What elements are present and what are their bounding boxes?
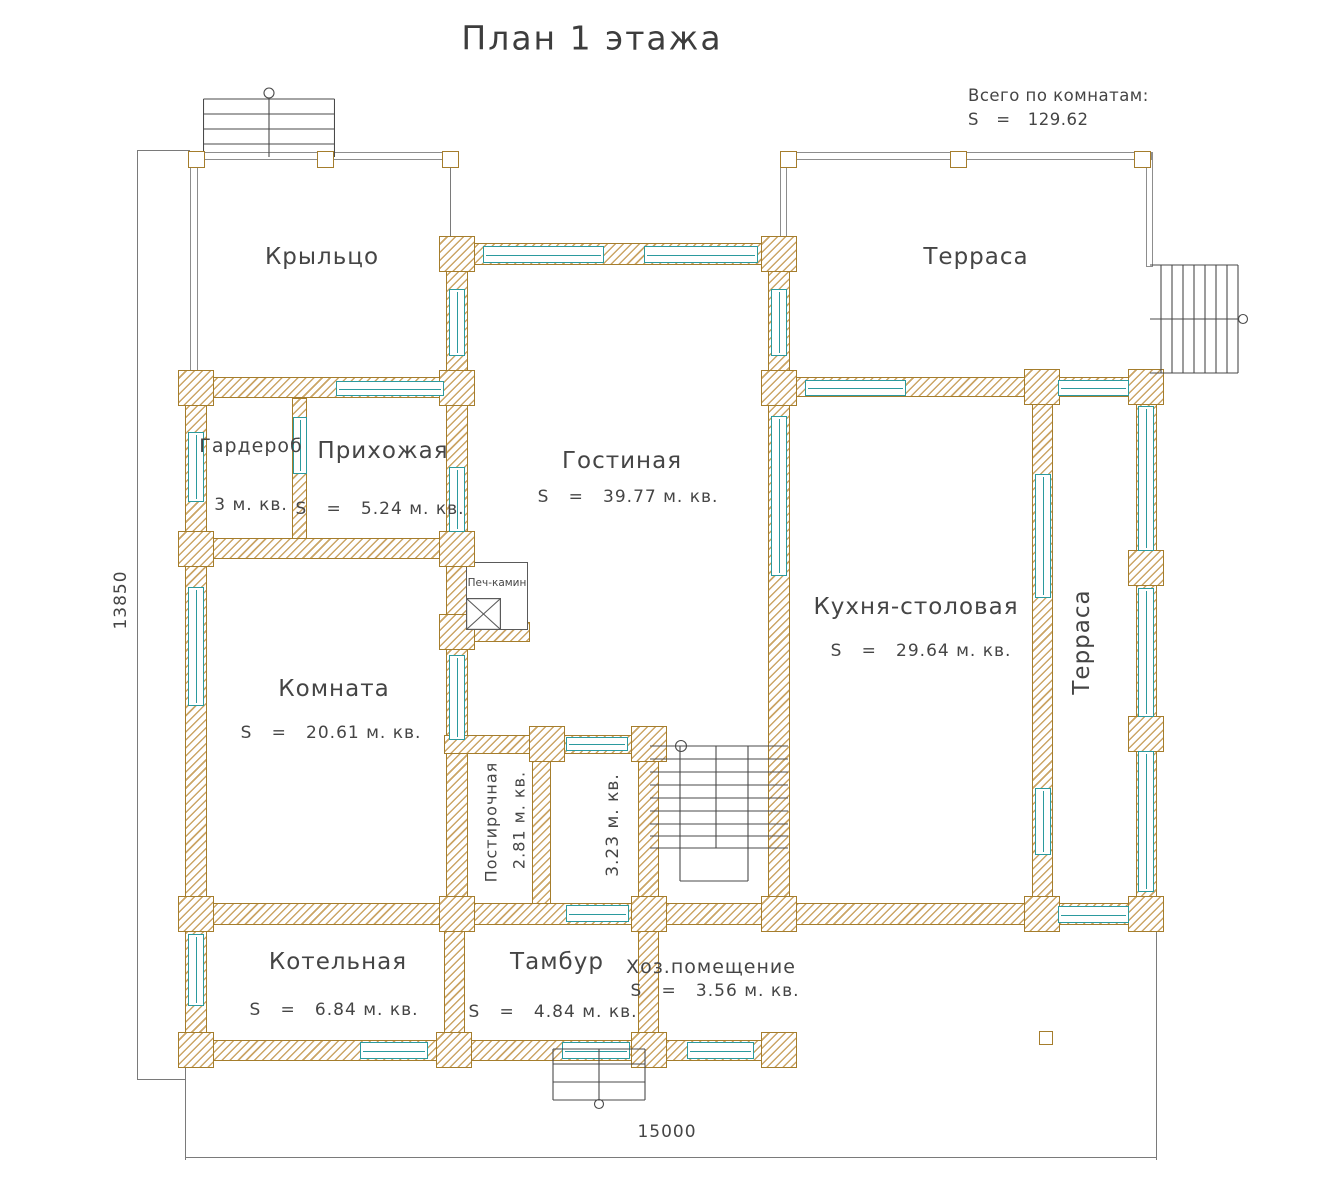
- porch-post: [317, 151, 334, 168]
- room-area-vestibule: S = 4.84 м. кв.: [468, 1002, 637, 1022]
- wall-segment: [185, 538, 468, 559]
- dimension-line: [185, 1157, 1157, 1158]
- window: [449, 289, 465, 356]
- window: [1035, 474, 1051, 598]
- wall-pier: [439, 531, 475, 567]
- dimension-line: [137, 150, 138, 1080]
- porch-outline: [190, 152, 198, 380]
- room-label-room: Комната: [278, 676, 389, 702]
- wall-pier: [1024, 369, 1060, 405]
- window: [360, 1042, 428, 1059]
- wall-pier: [436, 1032, 472, 1068]
- dimension-line: [185, 1066, 186, 1160]
- interior-stairs: [650, 736, 788, 886]
- wall-pier: [631, 896, 667, 932]
- room-area-stair-room: 3.23 м. кв.: [603, 773, 623, 877]
- wall-pier: [1128, 716, 1164, 752]
- summary-heading: Всего по комнатам:: [968, 86, 1149, 105]
- window: [336, 381, 444, 396]
- wall-segment: [185, 903, 1161, 925]
- porch-post: [780, 151, 797, 168]
- porch-outline: [1146, 152, 1153, 267]
- porch-post: [1134, 151, 1151, 168]
- dimension-width: 15000: [637, 1122, 696, 1142]
- window: [483, 246, 604, 263]
- wall-pier: [439, 370, 475, 406]
- dimension-line: [137, 1079, 185, 1080]
- window: [805, 380, 906, 396]
- dimension-line: [137, 150, 190, 151]
- room-area-kitchen: S = 29.64 м. кв.: [831, 641, 1012, 661]
- porch-stairs: [203, 86, 335, 158]
- page-title: План 1 этажа: [461, 19, 722, 58]
- wall-segment: [444, 925, 465, 1041]
- room-label-terrace-top: Терраса: [923, 244, 1028, 270]
- window: [644, 246, 758, 263]
- room-area-laundry: 2.81 м. кв.: [510, 771, 529, 869]
- room-label-wardrobe: Гардероб: [199, 435, 303, 457]
- wall-pier: [439, 896, 475, 932]
- floor-plan-sheet: План 1 этажа Всего по комнатам: S = 129.…: [0, 0, 1327, 1200]
- room-label-terrace-right: Терраса: [1069, 589, 1095, 694]
- wall-pier: [1024, 896, 1060, 932]
- room-label-laundry: Постирочная: [482, 762, 501, 883]
- window: [1138, 406, 1154, 551]
- porch-post: [442, 151, 459, 168]
- room-label-kitchen: Кухня-столовая: [813, 594, 1018, 620]
- room-label-utility: Хоз.помещение: [626, 956, 796, 978]
- summary-total: S = 129.62: [968, 110, 1089, 129]
- room-area-utility: S = 3.56 м. кв.: [630, 981, 799, 1001]
- porch-post: [188, 151, 205, 168]
- window: [188, 934, 204, 1006]
- room-label-vestibule: Тамбур: [510, 949, 604, 975]
- floor-plan: План 1 этажа Всего по комнатам: S = 129.…: [0, 0, 1327, 1200]
- window: [1058, 380, 1129, 396]
- window: [188, 587, 204, 706]
- window: [771, 289, 787, 356]
- porch-post: [1039, 1031, 1053, 1045]
- window: [1138, 588, 1154, 717]
- porch-post: [950, 151, 967, 168]
- room-label-hallway: Прихожая: [317, 438, 448, 464]
- room-area-room: S = 20.61 м. кв.: [241, 723, 422, 743]
- room-label-porch: Крыльцо: [265, 244, 379, 270]
- wall-pier: [178, 896, 214, 932]
- window: [771, 416, 787, 576]
- wall-pier: [761, 896, 797, 932]
- window: [449, 655, 465, 740]
- wall-pier: [1128, 550, 1164, 586]
- wall-pier: [178, 1032, 214, 1068]
- window: [566, 737, 628, 751]
- wall-pier: [761, 1032, 797, 1068]
- window: [1138, 751, 1154, 892]
- wall-pier: [529, 726, 565, 762]
- fireplace-label: Печ-камин: [468, 577, 527, 589]
- window: [566, 905, 629, 922]
- dimension-line: [1156, 930, 1157, 1160]
- room-label-boiler: Котельная: [269, 949, 407, 975]
- wall-segment: [532, 754, 551, 904]
- window: [687, 1042, 754, 1059]
- wall-pier: [439, 236, 475, 272]
- room-area-hallway: S = 5.24 м. кв.: [295, 499, 464, 519]
- window: [1058, 906, 1129, 923]
- dimension-height: 13850: [111, 570, 131, 629]
- wall-pier: [178, 370, 214, 406]
- entry-stairs: [552, 1046, 646, 1112]
- fireplace-cross-icon: [466, 598, 501, 630]
- wall-pier: [1128, 896, 1164, 932]
- room-label-living: Гостиная: [562, 448, 682, 474]
- wall-pier: [178, 531, 214, 567]
- room-area-boiler: S = 6.84 м. кв.: [249, 1000, 418, 1020]
- wall-pier: [761, 370, 797, 406]
- wall-pier: [761, 236, 797, 272]
- window: [1035, 788, 1051, 855]
- terrace-stairs: [1150, 258, 1250, 380]
- dimension-line: [450, 166, 451, 246]
- room-area-wardrobe: 3 м. кв.: [214, 495, 288, 515]
- room-area-living: S = 39.77 м. кв.: [538, 487, 719, 507]
